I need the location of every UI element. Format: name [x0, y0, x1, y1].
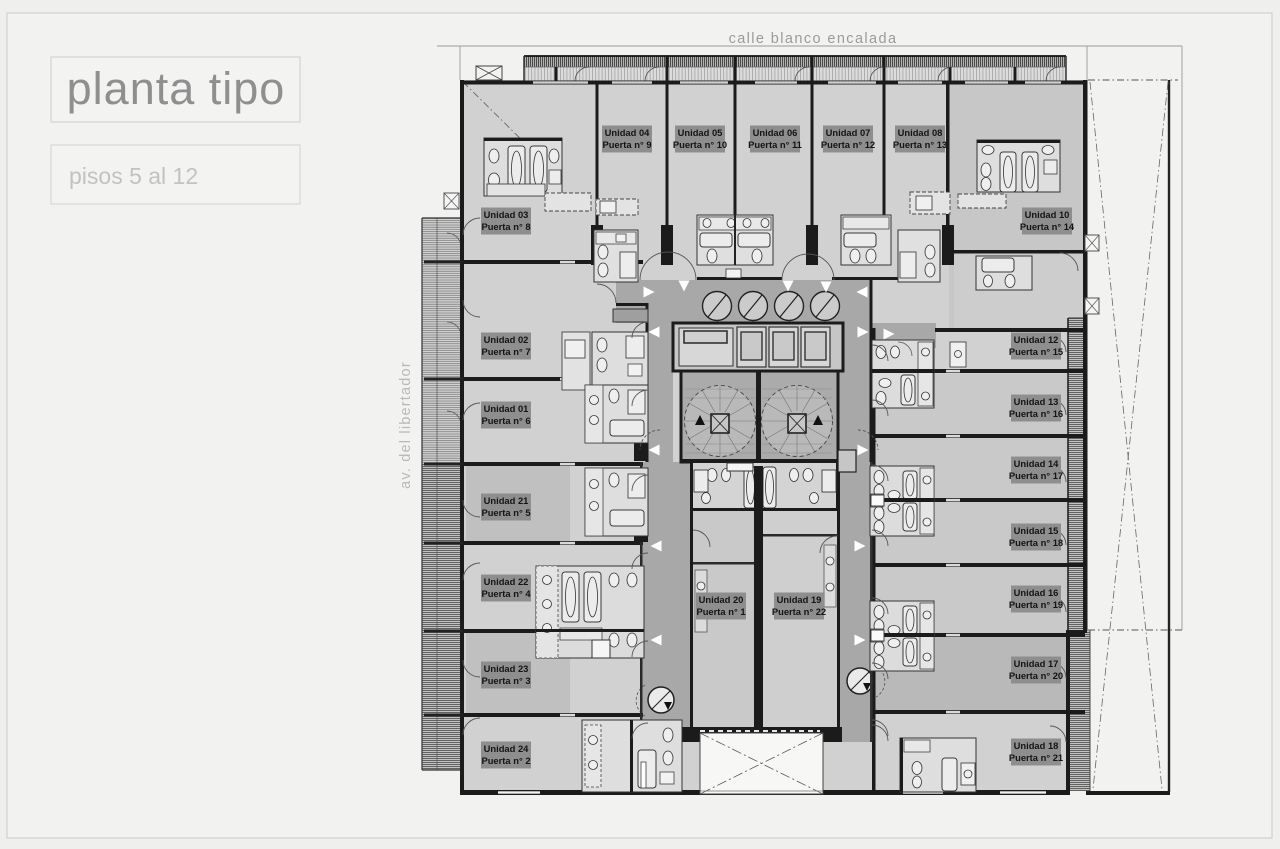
svg-text:Unidad 24: Unidad 24 — [484, 743, 530, 754]
svg-text:Puerta n° 9: Puerta n° 9 — [602, 139, 651, 150]
svg-text:Puerta n° 15: Puerta n° 15 — [1009, 346, 1063, 357]
svg-text:Puerta n° 3: Puerta n° 3 — [481, 675, 530, 686]
svg-text:Unidad 05: Unidad 05 — [678, 127, 723, 138]
svg-text:Puerta n° 2: Puerta n° 2 — [481, 755, 530, 766]
svg-text:Puerta n° 4: Puerta n° 4 — [481, 588, 531, 599]
svg-text:Puerta n° 13: Puerta n° 13 — [893, 139, 947, 150]
svg-text:Puerta n° 18: Puerta n° 18 — [1009, 537, 1063, 548]
svg-text:Unidad 07: Unidad 07 — [826, 127, 871, 138]
svg-text:Unidad 21: Unidad 21 — [484, 495, 529, 506]
svg-text:Puerta n° 5: Puerta n° 5 — [481, 507, 530, 518]
svg-text:Unidad 06: Unidad 06 — [753, 127, 798, 138]
svg-text:Puerta n° 7: Puerta n° 7 — [481, 346, 530, 357]
svg-text:Puerta n° 22: Puerta n° 22 — [772, 606, 826, 617]
svg-text:Unidad 01: Unidad 01 — [484, 403, 529, 414]
svg-text:Unidad 12: Unidad 12 — [1014, 334, 1059, 345]
svg-text:Unidad 16: Unidad 16 — [1014, 587, 1059, 598]
svg-text:Unidad 13: Unidad 13 — [1014, 396, 1059, 407]
svg-text:Puerta n° 1: Puerta n° 1 — [696, 606, 745, 617]
svg-text:Puerta n° 8: Puerta n° 8 — [481, 221, 530, 232]
svg-text:planta tipo: planta tipo — [67, 63, 286, 114]
svg-text:Unidad 17: Unidad 17 — [1014, 658, 1059, 669]
svg-text:Puerta n° 20: Puerta n° 20 — [1009, 670, 1063, 681]
svg-text:Puerta n° 12: Puerta n° 12 — [821, 139, 875, 150]
svg-text:Puerta n° 10: Puerta n° 10 — [673, 139, 727, 150]
svg-text:Unidad 10: Unidad 10 — [1025, 209, 1070, 220]
svg-text:Unidad 02: Unidad 02 — [484, 334, 529, 345]
svg-text:Unidad 08: Unidad 08 — [898, 127, 943, 138]
svg-text:Unidad 03: Unidad 03 — [484, 209, 529, 220]
svg-text:Puerta n° 16: Puerta n° 16 — [1009, 408, 1063, 419]
svg-text:Puerta n° 19: Puerta n° 19 — [1009, 599, 1063, 610]
svg-text:Unidad 14: Unidad 14 — [1014, 458, 1060, 469]
svg-text:Puerta n° 21: Puerta n° 21 — [1009, 752, 1063, 763]
svg-text:Puerta n° 11: Puerta n° 11 — [748, 139, 802, 150]
svg-text:Unidad 04: Unidad 04 — [605, 127, 651, 138]
svg-text:calle blanco encalada: calle blanco encalada — [729, 31, 898, 47]
svg-text:Unidad 19: Unidad 19 — [777, 594, 822, 605]
svg-text:Unidad 20: Unidad 20 — [699, 594, 744, 605]
svg-text:av. del libertador: av. del libertador — [398, 361, 414, 489]
svg-text:Puerta n° 14: Puerta n° 14 — [1020, 221, 1075, 232]
svg-text:Unidad 15: Unidad 15 — [1014, 525, 1059, 536]
svg-text:Unidad 22: Unidad 22 — [484, 576, 529, 587]
svg-text:pisos 5 al 12: pisos 5 al 12 — [69, 163, 198, 189]
svg-text:Unidad 18: Unidad 18 — [1014, 740, 1059, 751]
svg-text:Unidad 23: Unidad 23 — [484, 663, 529, 674]
svg-text:Puerta n° 6: Puerta n° 6 — [481, 415, 530, 426]
svg-text:Puerta n° 17: Puerta n° 17 — [1009, 470, 1063, 481]
